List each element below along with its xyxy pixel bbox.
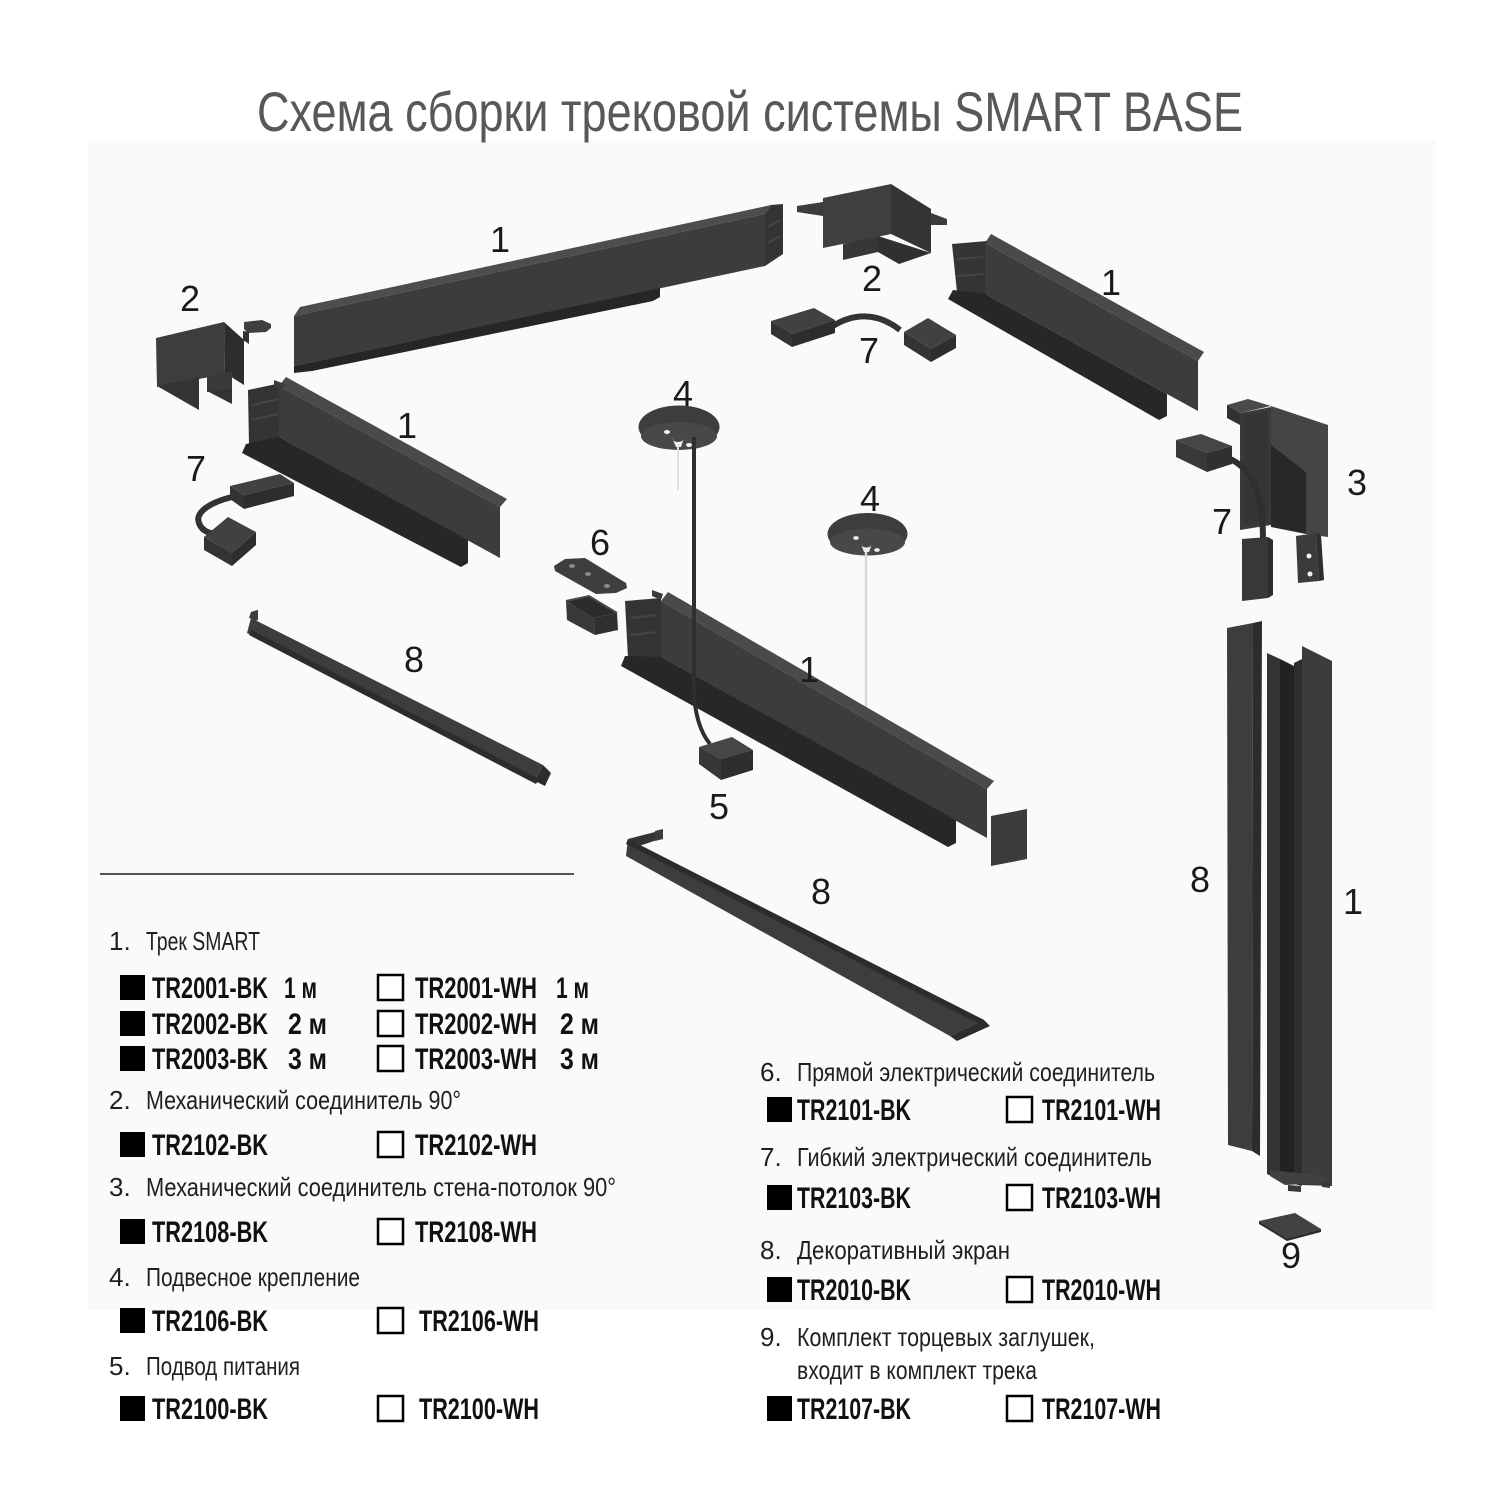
svg-text:TR2101-WH: TR2101-WH (1042, 1094, 1161, 1127)
svg-text:1 м: 1 м (556, 972, 589, 1005)
svg-text:входит в комплект трека: входит в комплект трека (797, 1355, 1037, 1385)
svg-text:1 м: 1 м (284, 972, 317, 1005)
svg-text:1: 1 (490, 219, 510, 260)
svg-text:TR2107-WH: TR2107-WH (1042, 1393, 1161, 1426)
svg-text:TR2108-BK: TR2108-BK (152, 1216, 268, 1249)
svg-text:7: 7 (186, 448, 206, 489)
svg-text:TR2106-BK: TR2106-BK (152, 1305, 268, 1338)
svg-text:Комплект торцевых заглушек,: Комплект торцевых заглушек, (797, 1322, 1095, 1352)
svg-text:TR2001-WH: TR2001-WH (415, 972, 537, 1005)
svg-text:7: 7 (859, 330, 879, 371)
svg-text:1: 1 (1101, 262, 1121, 303)
svg-text:Прямой электрический соедините: Прямой электрический соединитель (797, 1057, 1155, 1087)
svg-text:TR2101-BK: TR2101-BK (797, 1094, 911, 1127)
svg-text:7: 7 (1212, 501, 1232, 542)
svg-text:8.: 8. (760, 1235, 782, 1265)
svg-text:3: 3 (1347, 462, 1367, 503)
svg-text:Схема сборки трековой системы: Схема сборки трековой системы SMART BASE (257, 80, 1243, 143)
svg-text:6: 6 (590, 522, 610, 563)
svg-text:3.: 3. (109, 1172, 131, 1202)
svg-text:TR2103-WH: TR2103-WH (1042, 1182, 1161, 1215)
svg-text:TR2106-WH: TR2106-WH (419, 1305, 539, 1338)
svg-text:Гибкий электрический соедините: Гибкий электрический соединитель (797, 1142, 1152, 1172)
svg-text:2.: 2. (109, 1085, 131, 1115)
svg-text:TR2001-BK: TR2001-BK (152, 972, 268, 1005)
svg-text:1.: 1. (109, 926, 131, 956)
svg-text:3 м: 3 м (288, 1043, 327, 1076)
svg-text:4.: 4. (109, 1262, 131, 1292)
svg-text:9.: 9. (760, 1322, 782, 1352)
svg-text:TR2102-WH: TR2102-WH (415, 1129, 537, 1162)
svg-text:TR2010-WH: TR2010-WH (1042, 1274, 1161, 1307)
svg-text:1: 1 (1343, 881, 1363, 922)
svg-text:1: 1 (799, 649, 819, 690)
svg-text:9: 9 (1281, 1235, 1301, 1276)
svg-text:2: 2 (862, 258, 882, 299)
svg-text:6.: 6. (760, 1057, 782, 1087)
svg-text:Подвод питания: Подвод питания (146, 1351, 300, 1381)
svg-text:4: 4 (673, 373, 693, 414)
svg-text:4: 4 (860, 478, 880, 519)
svg-text:TR2108-WH: TR2108-WH (415, 1216, 537, 1249)
svg-text:8: 8 (404, 639, 424, 680)
svg-text:Механический соединитель 90°: Механический соединитель 90° (146, 1085, 461, 1115)
svg-text:Механический соединитель стена: Механический соединитель стена-потолок 9… (146, 1172, 616, 1202)
svg-text:TR2100-WH: TR2100-WH (419, 1393, 539, 1426)
svg-text:TR2002-WH: TR2002-WH (415, 1008, 537, 1041)
svg-text:3 м: 3 м (560, 1043, 599, 1076)
svg-text:7.: 7. (760, 1142, 782, 1172)
svg-text:Декоративный экран: Декоративный экран (797, 1235, 1010, 1265)
svg-text:5.: 5. (109, 1351, 131, 1381)
svg-text:2 м: 2 м (288, 1008, 327, 1041)
svg-text:2: 2 (180, 278, 200, 319)
svg-text:TR2103-BK: TR2103-BK (797, 1182, 911, 1215)
svg-text:TR2003-WH: TR2003-WH (415, 1043, 537, 1076)
svg-text:Подвесное крепление: Подвесное крепление (146, 1262, 360, 1292)
svg-text:Трек SMART: Трек SMART (146, 926, 260, 956)
svg-text:8: 8 (1190, 859, 1210, 900)
svg-text:2 м: 2 м (560, 1008, 599, 1041)
svg-text:TR2002-BK: TR2002-BK (152, 1008, 268, 1041)
svg-text:TR2102-BK: TR2102-BK (152, 1129, 268, 1162)
svg-text:TR2100-BK: TR2100-BK (152, 1393, 268, 1426)
svg-text:TR2003-BK: TR2003-BK (152, 1043, 268, 1076)
svg-text:1: 1 (397, 405, 417, 446)
svg-text:TR2010-BK: TR2010-BK (797, 1274, 911, 1307)
svg-text:8: 8 (811, 871, 831, 912)
svg-text:TR2107-BK: TR2107-BK (797, 1393, 911, 1426)
svg-text:5: 5 (709, 786, 729, 827)
